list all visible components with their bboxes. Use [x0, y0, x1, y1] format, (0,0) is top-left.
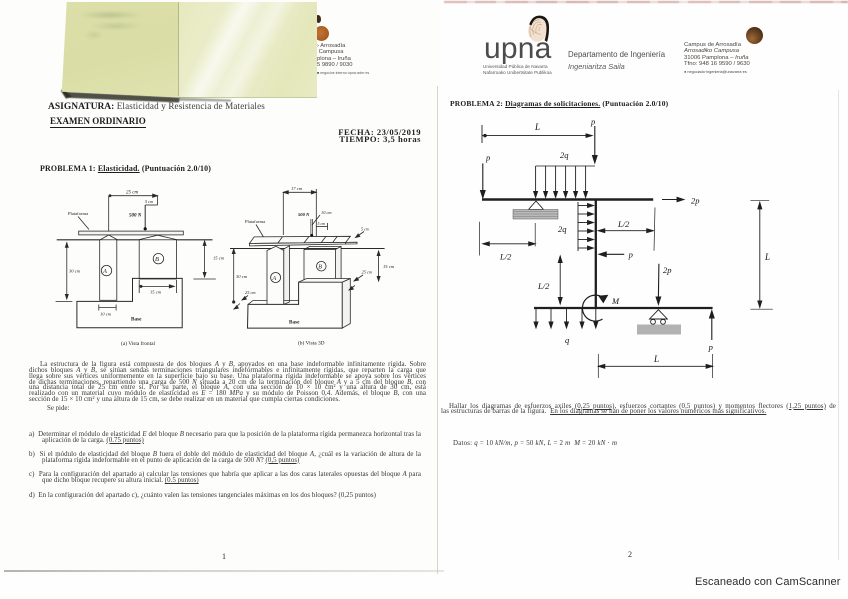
svg-text:2p: 2p	[691, 196, 700, 206]
svg-text:2q: 2q	[560, 150, 569, 160]
svg-text:5 cm: 5 cm	[145, 199, 153, 204]
svg-text:17 cm: 17 cm	[291, 186, 303, 191]
svg-text:2q: 2q	[558, 224, 567, 234]
svg-text:15 cm: 15 cm	[213, 256, 225, 261]
svg-text:10 cm: 10 cm	[321, 210, 332, 215]
svg-text:Base: Base	[131, 317, 142, 323]
svg-text:(a) Vista frontal: (a) Vista frontal	[121, 340, 156, 347]
svg-text:Base: Base	[289, 320, 300, 326]
svg-text:Plataforma: Plataforma	[68, 211, 88, 216]
svg-text:15 cm: 15 cm	[383, 264, 395, 269]
svg-text:A: A	[271, 275, 276, 282]
svg-text:p: p	[485, 153, 490, 163]
svg-text:5 cm: 5 cm	[318, 221, 326, 226]
svg-text:B: B	[318, 265, 322, 271]
svg-text:25 cm: 25 cm	[362, 270, 373, 275]
svg-text:25 cm: 25 cm	[245, 290, 256, 295]
svg-text:L: L	[764, 252, 770, 262]
svg-text:p: p	[590, 117, 595, 127]
svg-text:L/2: L/2	[617, 219, 630, 229]
svg-text:500 N: 500 N	[298, 212, 310, 217]
svg-text:B: B	[155, 256, 159, 263]
svg-text:q: q	[565, 335, 570, 345]
svg-text:30 cm: 30 cm	[236, 274, 248, 279]
svg-text:500 N: 500 N	[129, 214, 142, 219]
svg-text:L/2: L/2	[499, 252, 512, 262]
svg-text:M: M	[611, 296, 620, 306]
svg-text:30 cm: 30 cm	[69, 269, 81, 274]
svg-text:(b) Vista 3D: (b) Vista 3D	[298, 340, 325, 347]
svg-text:p: p	[708, 342, 713, 352]
svg-text:2p: 2p	[663, 265, 672, 275]
svg-text:p: p	[628, 250, 633, 260]
svg-text:25 cm: 25 cm	[126, 191, 138, 196]
svg-text:L/2: L/2	[537, 281, 550, 291]
svg-text:15 cm: 15 cm	[150, 290, 162, 295]
svg-text:L: L	[534, 122, 540, 132]
svg-text:10 cm: 10 cm	[100, 312, 112, 317]
svg-text:L: L	[653, 354, 659, 364]
svg-text:A: A	[102, 268, 107, 275]
svg-text:5 cm: 5 cm	[361, 227, 369, 232]
svg-text:Plataforma: Plataforma	[245, 219, 265, 224]
